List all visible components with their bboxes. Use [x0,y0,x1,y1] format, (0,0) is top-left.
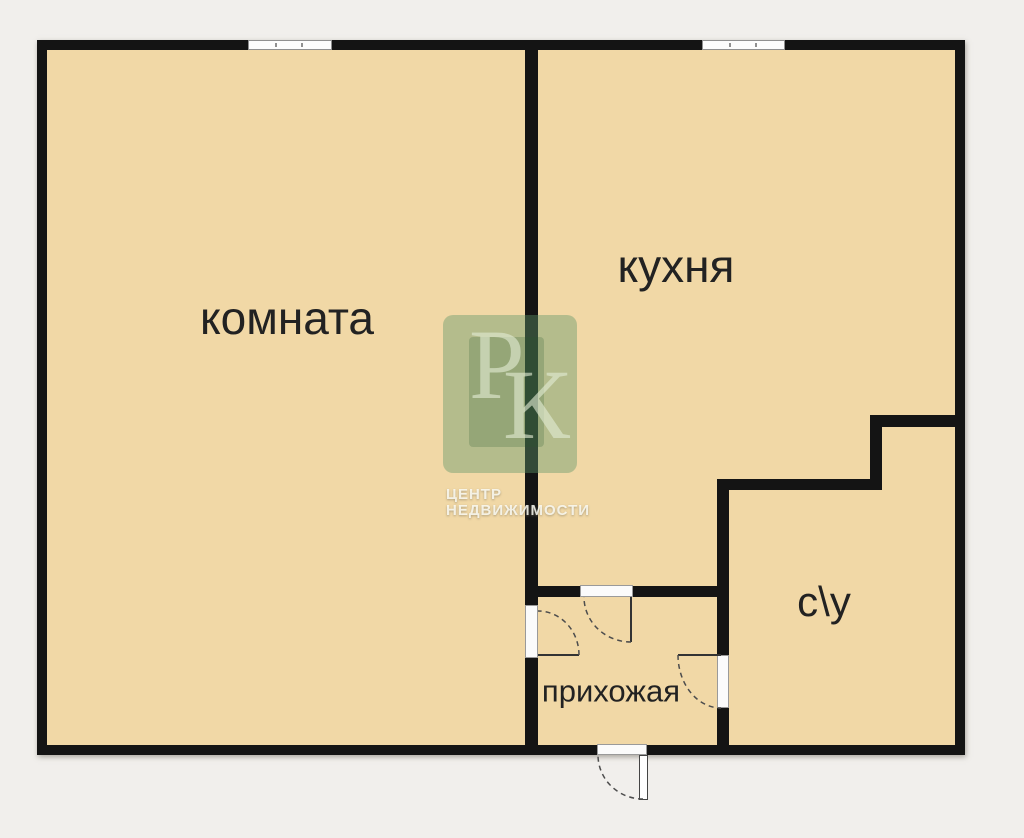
room-label-kitchen: кухня [618,243,735,289]
room-label-bathroom: с\у [797,581,851,623]
watermark-badge: Р К [443,315,577,473]
watermark-caption-line1: ЦЕНТР [446,487,590,503]
watermark-caption-line2: НЕДВИЖИМОСТИ [446,503,590,519]
room-label-living-room: комната [200,295,374,341]
watermark-letter-k: К [503,355,570,455]
kitchen-door-arc [584,597,631,642]
watermark-caption: ЦЕНТР НЕДВИЖИМОСТИ [446,487,590,519]
entry-door-arc [598,755,643,799]
room-label-hallway: прихожая [542,676,680,707]
living-room-door-arc [538,611,579,655]
floor-plan: Р К ЦЕНТР НЕДВИЖИМОСТИ комната кухня с\у… [0,0,1024,838]
bathroom-door-arc [678,655,721,708]
